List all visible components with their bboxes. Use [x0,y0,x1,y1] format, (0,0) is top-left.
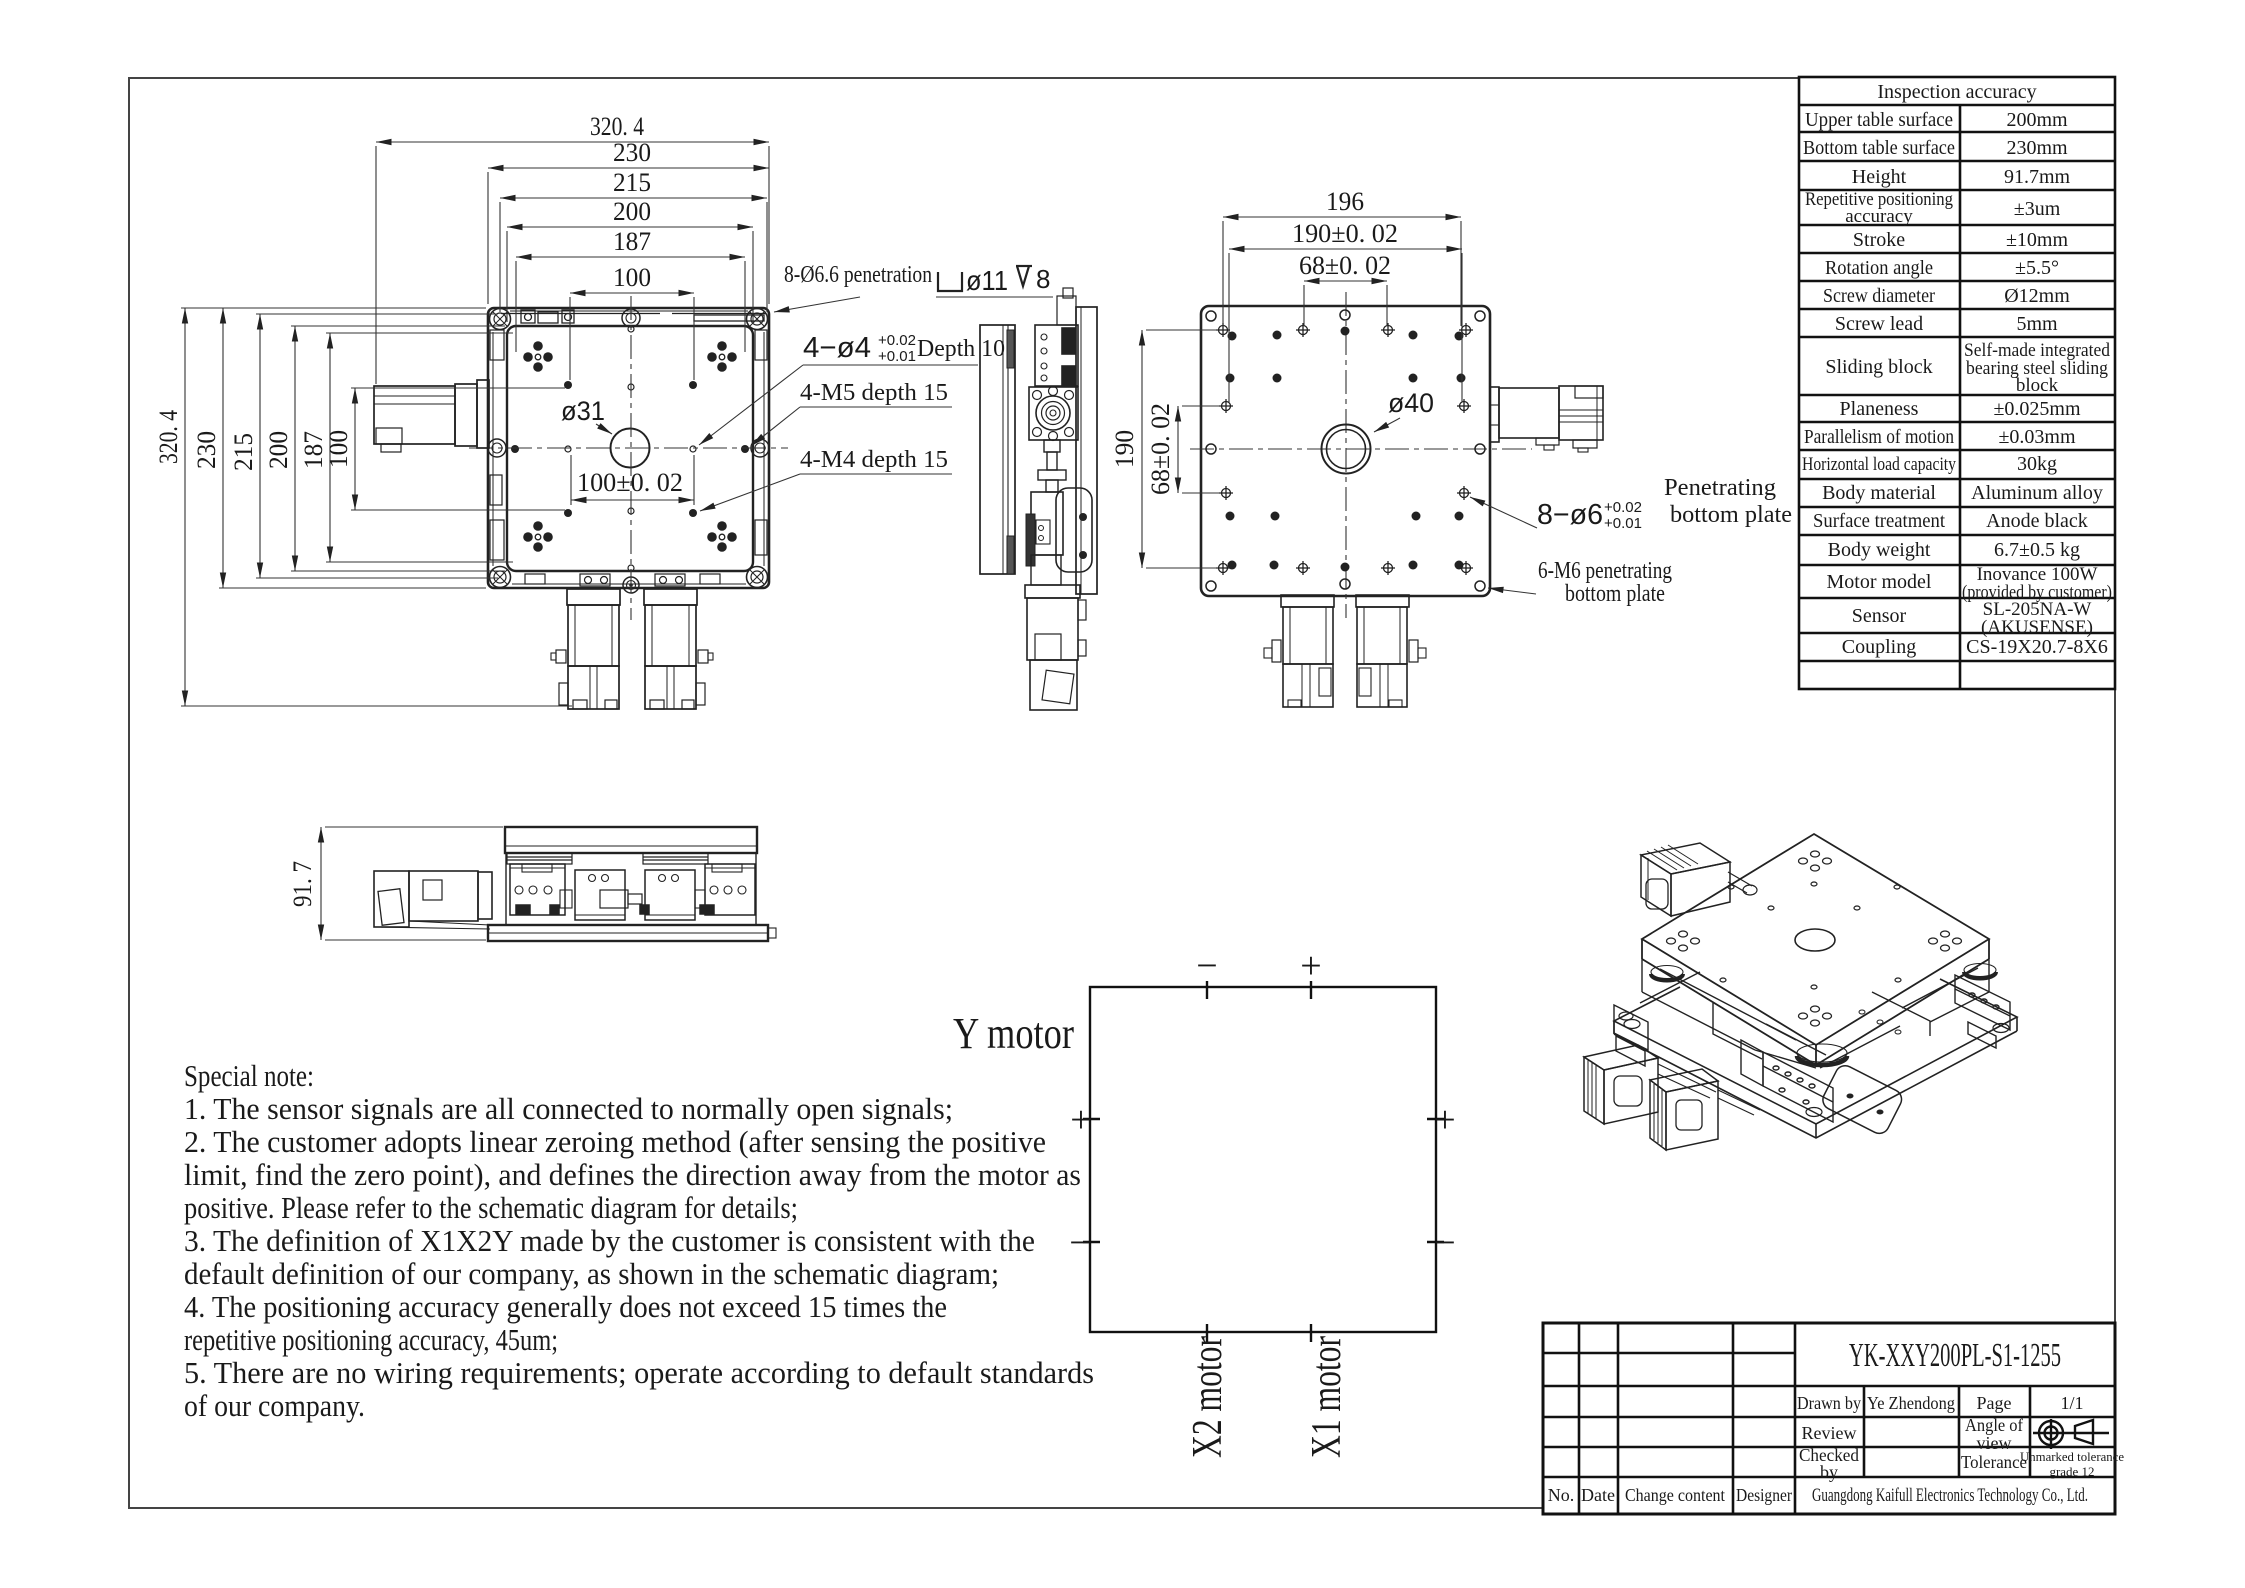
svg-text:No.: No. [1548,1485,1575,1505]
svg-text:Aluminum alloy: Aluminum alloy [1971,482,2103,504]
svg-text:Page: Page [1977,1393,2012,1413]
svg-text:91.7mm: 91.7mm [2004,166,2071,188]
svg-text:3. The definition of X1X2Y mad: 3. The definition of X1X2Y made by the c… [184,1223,1035,1258]
svg-text:±10mm: ±10mm [2006,229,2069,251]
svg-text:Motor model: Motor model [1827,571,1932,593]
svg-text:6.7±0.5 kg: 6.7±0.5 kg [1994,539,2080,561]
svg-text:5. There are no wiring require: 5. There are no wiring requirements; ope… [184,1355,1094,1390]
svg-text:bottom plate: bottom plate [1670,502,1792,528]
svg-text:187: 187 [613,227,651,256]
svg-text:accuracy: accuracy [1845,206,1913,227]
svg-text:positive. Please refer to the: positive. Please refer to the schematic … [184,1190,798,1225]
svg-text:Ye Zhendong: Ye Zhendong [1867,1393,1955,1413]
svg-text:Special note:: Special note: [184,1058,314,1093]
svg-text:1. The sensor signals are all: 1. The sensor signals are all connected … [184,1091,953,1126]
svg-text:Review: Review [1802,1423,1857,1443]
svg-text:196: 196 [1326,187,1364,216]
svg-text:4. The positioning accuracy ge: 4. The positioning accuracy generally do… [184,1289,947,1324]
svg-text:Rotation angle: Rotation angle [1825,257,1933,279]
svg-text:190: 190 [1110,430,1139,468]
svg-text:30kg: 30kg [2017,453,2057,475]
svg-text:Surface treatment: Surface treatment [1813,510,1945,532]
svg-text:68±0. 02: 68±0. 02 [1146,403,1175,495]
svg-text:block: block [2016,375,2059,396]
svg-text:Height: Height [1852,166,1907,188]
svg-text:230: 230 [192,431,221,469]
svg-text:default definition of our comp: default definition of our company, as sh… [184,1256,999,1291]
svg-text:+0.02: +0.02 [878,332,916,349]
svg-text:+0.02: +0.02 [1604,499,1642,516]
svg-text:Unmarked tolerance: Unmarked tolerance [2020,1449,2124,1464]
svg-text:Angle of: Angle of [1965,1415,2023,1435]
svg-text:1/1: 1/1 [2060,1393,2083,1413]
svg-text:4−ø4: 4−ø4 [803,332,871,364]
svg-text:Horizontal load capacity: Horizontal load capacity [1802,454,1956,475]
svg-text:CS-19X20.7-8X6: CS-19X20.7-8X6 [1966,636,2108,658]
svg-text:91. 7: 91. 7 [288,861,317,907]
svg-text:5mm: 5mm [2016,313,2058,335]
svg-text:±5.5°: ±5.5° [2015,257,2059,279]
svg-text:X2 motor: X2 motor [1185,1336,1231,1458]
svg-text:Guangdong Kaifull Electronics: Guangdong Kaifull Electronics Technology… [1812,1485,2088,1506]
svg-text:±0.03mm: ±0.03mm [1998,426,2076,448]
svg-text:−: − [1196,945,1217,987]
svg-text:Body material: Body material [1822,482,1936,504]
svg-text:Stroke: Stroke [1853,229,1905,251]
svg-text:±0.025mm: ±0.025mm [1993,398,2081,420]
svg-text:68±0. 02: 68±0. 02 [1299,251,1391,280]
svg-text:Screw diameter: Screw diameter [1823,285,1935,307]
svg-text:+: + [1070,1099,1091,1141]
svg-text:8: 8 [1036,264,1050,294]
svg-text:Tolerance: Tolerance [1961,1452,2027,1472]
svg-text:Planeness: Planeness [1840,398,1919,420]
svg-text:230mm: 230mm [2006,137,2068,159]
svg-text:4-M4 depth 15: 4-M4 depth 15 [800,447,948,473]
svg-text:100: 100 [613,263,651,292]
svg-text:215: 215 [613,168,651,197]
svg-text:±3um: ±3um [2014,198,2061,220]
svg-text:Sensor: Sensor [1852,605,1907,627]
svg-text:8-Ø6.6 penetration: 8-Ø6.6 penetration [784,262,932,288]
svg-text:Date: Date [1581,1485,1615,1505]
svg-text:ø11: ø11 [966,265,1008,296]
svg-text:ø31: ø31 [561,396,605,426]
svg-text:8−ø6: 8−ø6 [1537,499,1603,531]
svg-text:+0.01: +0.01 [878,348,916,365]
svg-text:Upper table surface: Upper table surface [1805,109,1953,131]
svg-text:(AKUSENSE): (AKUSENSE) [1981,617,2093,638]
svg-text:Inspection accuracy: Inspection accuracy [1877,81,2036,103]
svg-text:repetitive positioning accurac: repetitive positioning accuracy, 45um; [184,1322,558,1357]
svg-text:Drawn by: Drawn by [1797,1393,1861,1413]
svg-text:+0.01: +0.01 [1604,515,1642,532]
svg-text:grade 12: grade 12 [2049,1464,2094,1479]
svg-text:+: + [1300,945,1321,987]
svg-text:limit, find the zero point), a: limit, find the zero point), and defines… [184,1157,1081,1192]
svg-text:ø40: ø40 [1388,388,1434,418]
svg-text:Coupling: Coupling [1842,636,1916,658]
svg-text:4-M5 depth 15: 4-M5 depth 15 [800,380,948,406]
svg-text:Change content: Change content [1625,1485,1725,1505]
svg-text:Sliding block: Sliding block [1825,356,1932,378]
svg-text:Y motor: Y motor [953,1009,1074,1058]
svg-text:200: 200 [264,431,293,469]
svg-text:Depth 10: Depth 10 [917,336,1005,362]
svg-text:215: 215 [229,433,258,471]
svg-text:2. The customer adopts linear: 2. The customer adopts linear zeroing me… [184,1124,1046,1159]
svg-text:Screw lead: Screw lead [1835,313,1923,335]
svg-text:Designer: Designer [1736,1485,1792,1505]
svg-text:200mm: 200mm [2006,109,2068,131]
svg-text:200: 200 [613,197,651,226]
svg-text:Ø12mm: Ø12mm [2004,285,2070,307]
svg-text:X1 motor: X1 motor [1304,1336,1350,1458]
svg-text:230: 230 [613,138,651,167]
svg-text:+: + [1434,1099,1455,1141]
svg-text:Penetrating: Penetrating [1664,475,1776,501]
svg-text:100±0. 02: 100±0. 02 [577,468,683,497]
svg-text:YK-XXY200PL-S1-1255: YK-XXY200PL-S1-1255 [1849,1337,2061,1374]
svg-text:of our company.: of our company. [184,1388,365,1423]
svg-text:190±0. 02: 190±0. 02 [1292,219,1398,248]
svg-text:−: − [1434,1222,1455,1264]
svg-text:320. 4: 320. 4 [154,410,183,464]
svg-text:Parallelism of motion: Parallelism of motion [1804,426,1954,448]
svg-text:−: − [1069,1222,1090,1264]
svg-text:Body weight: Body weight [1828,539,1931,561]
svg-text:view: view [1977,1433,2012,1453]
svg-text:Bottom table surface: Bottom table surface [1803,137,1955,159]
svg-text:by: by [1820,1462,1838,1482]
svg-text:bottom plate: bottom plate [1565,581,1665,607]
svg-text:Anode black: Anode black [1986,510,2088,532]
svg-text:100: 100 [324,430,353,468]
svg-text:320. 4: 320. 4 [590,112,644,141]
